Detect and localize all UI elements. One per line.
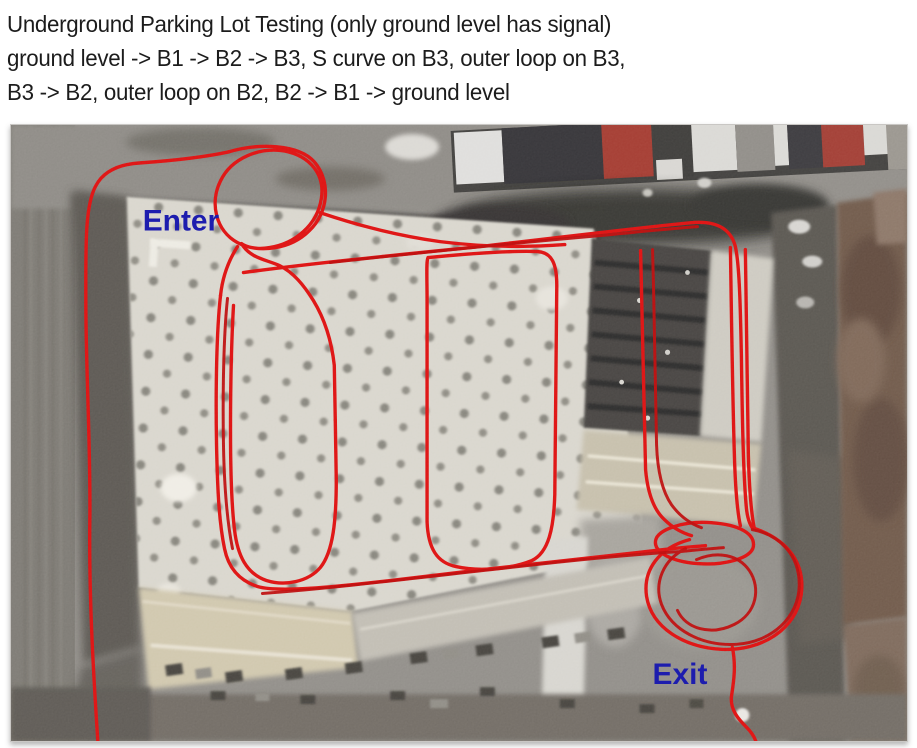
title-line-3: B3 -> B2, outer loop on B2, B2 -> B1 -> … [7, 75, 883, 109]
title-line-2: ground level -> B1 -> B2 -> B3, S curve … [7, 41, 883, 75]
title-block: Underground Parking Lot Testing (only gr… [7, 7, 910, 109]
title-line-1: Underground Parking Lot Testing (only gr… [7, 7, 883, 41]
enter-label: Enter [143, 205, 220, 238]
aerial-photo: Enter Exit [10, 124, 908, 742]
exit-label: Exit [653, 658, 708, 691]
aerial-photo-svg: Enter Exit [11, 125, 907, 741]
